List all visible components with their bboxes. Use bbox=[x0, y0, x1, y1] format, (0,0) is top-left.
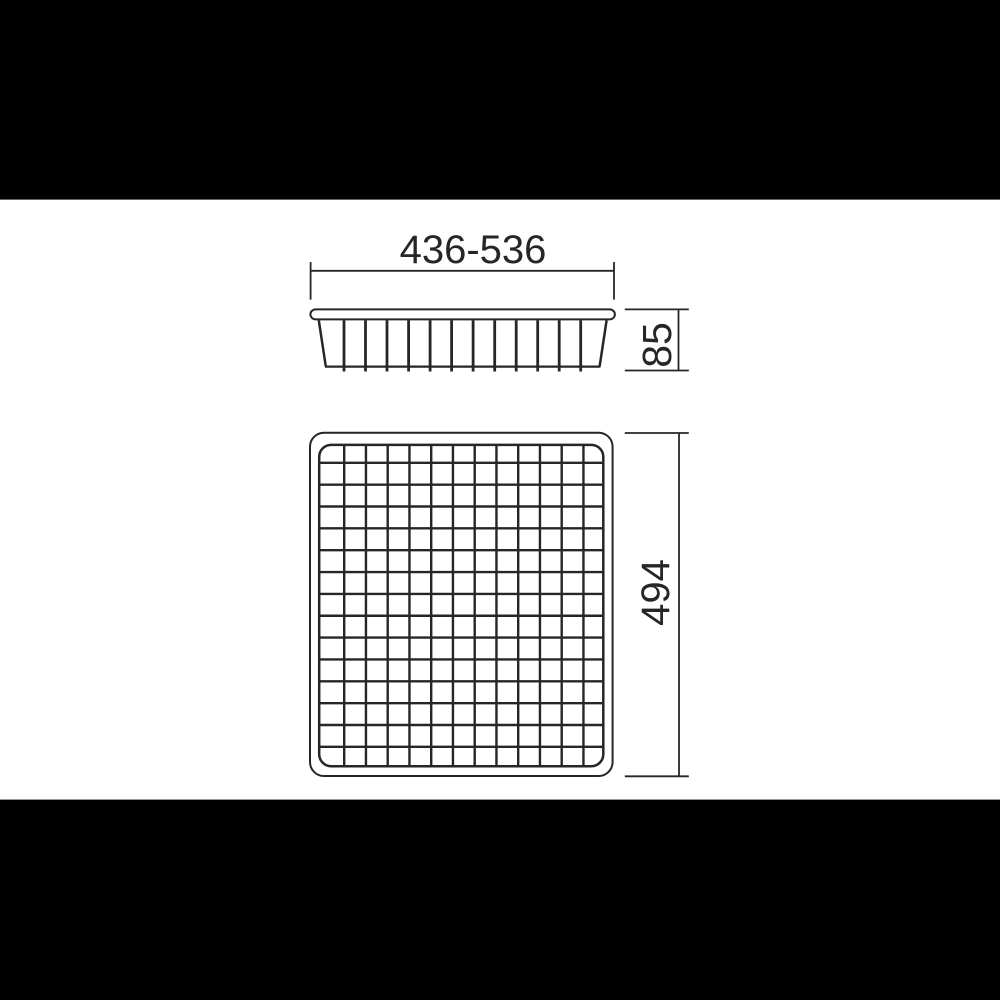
svg-text:436-536: 436-536 bbox=[400, 228, 547, 272]
svg-text:494: 494 bbox=[634, 559, 678, 626]
svg-text:85: 85 bbox=[634, 322, 680, 368]
